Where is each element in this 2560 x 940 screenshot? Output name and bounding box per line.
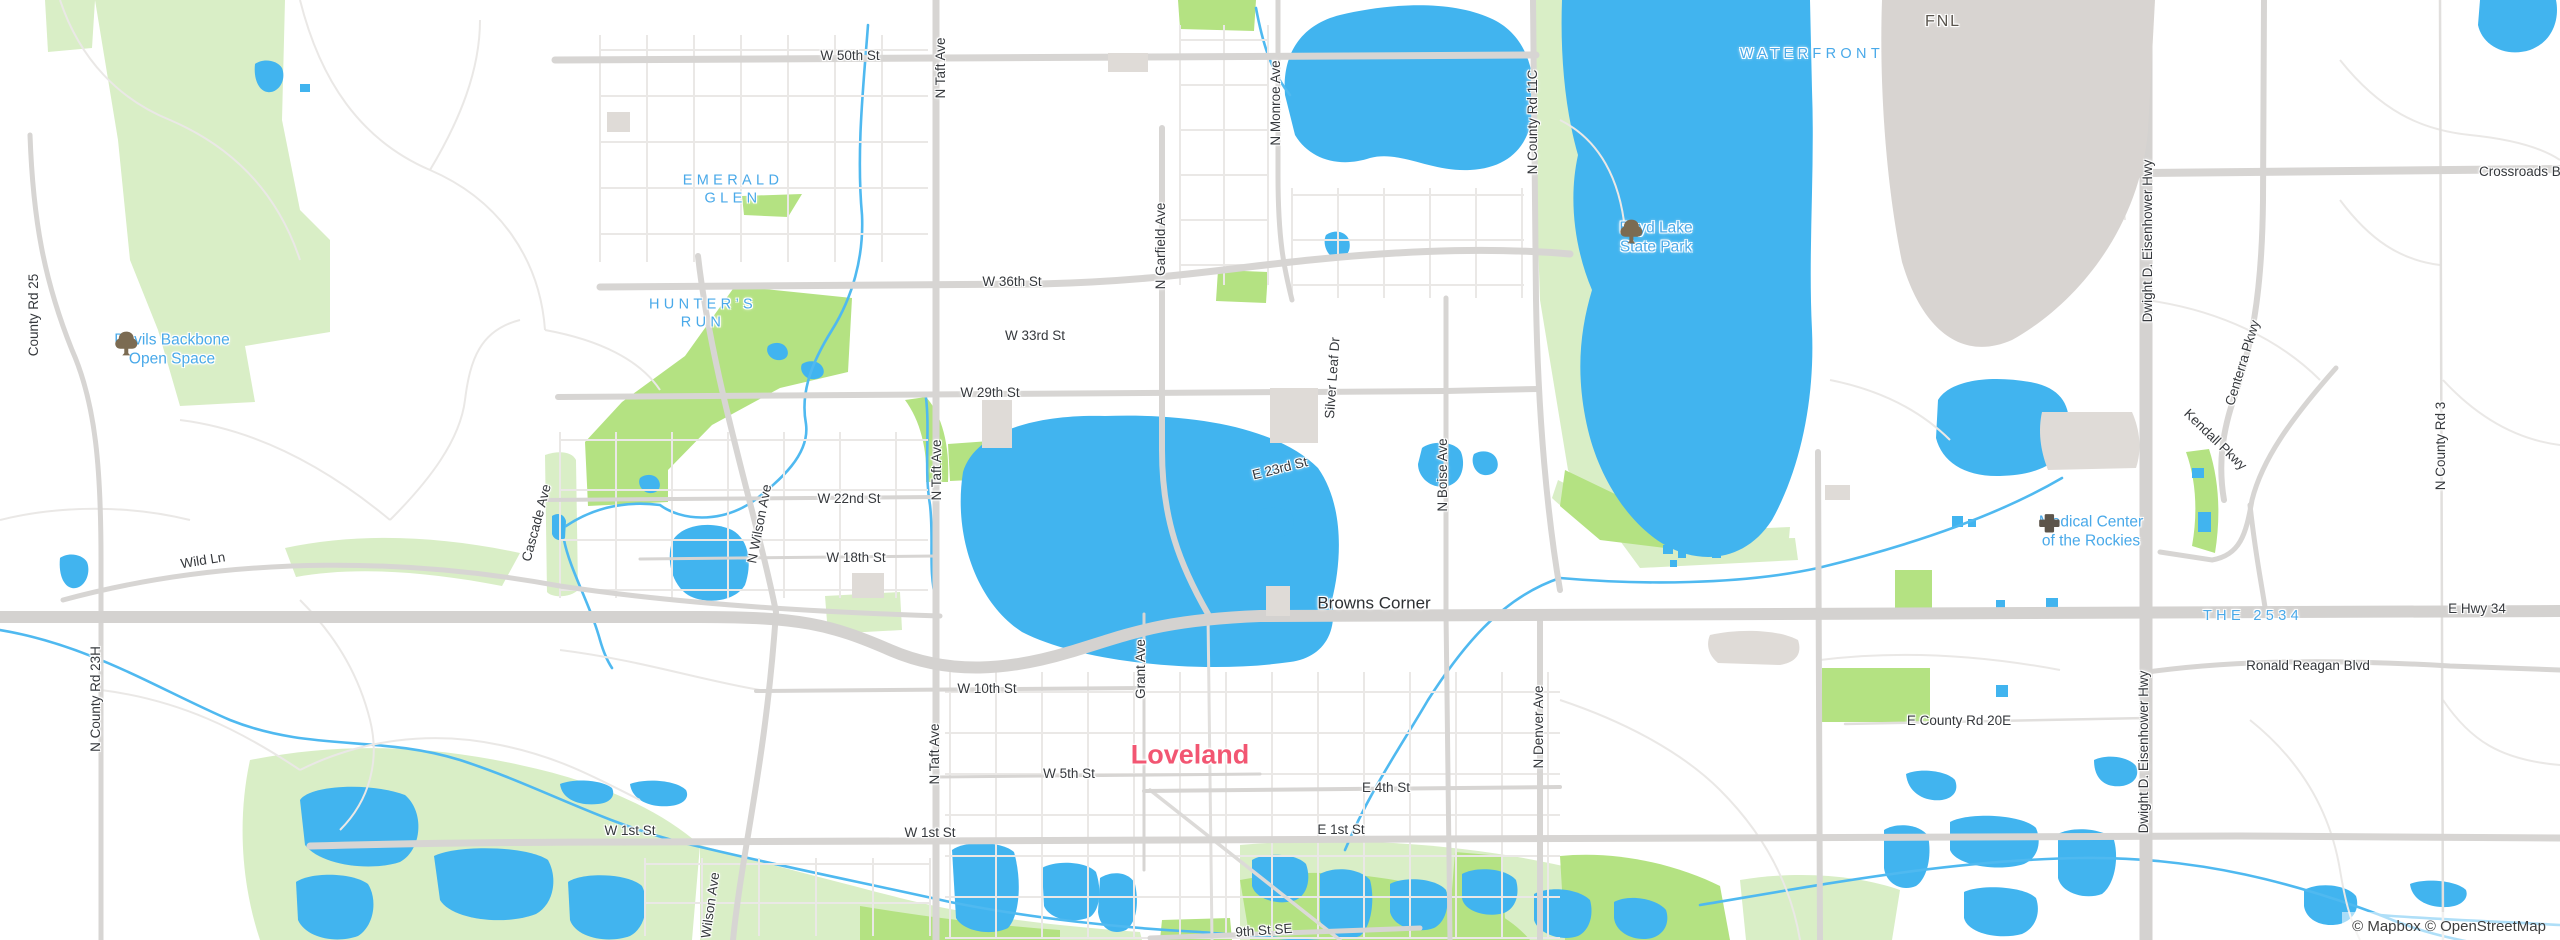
airport-area xyxy=(1881,0,2155,347)
attribution-text[interactable]: © Mapbox © OpenStreetMap xyxy=(2352,918,2546,935)
map-canvas xyxy=(0,0,2560,940)
attribution-bar[interactable]: © Mapbox © OpenStreetMap xyxy=(2342,912,2560,940)
medical-center-building xyxy=(2040,412,2139,470)
map-viewport[interactable]: W 50th StN Taft AveN Monroe AveN County … xyxy=(0,0,2560,940)
